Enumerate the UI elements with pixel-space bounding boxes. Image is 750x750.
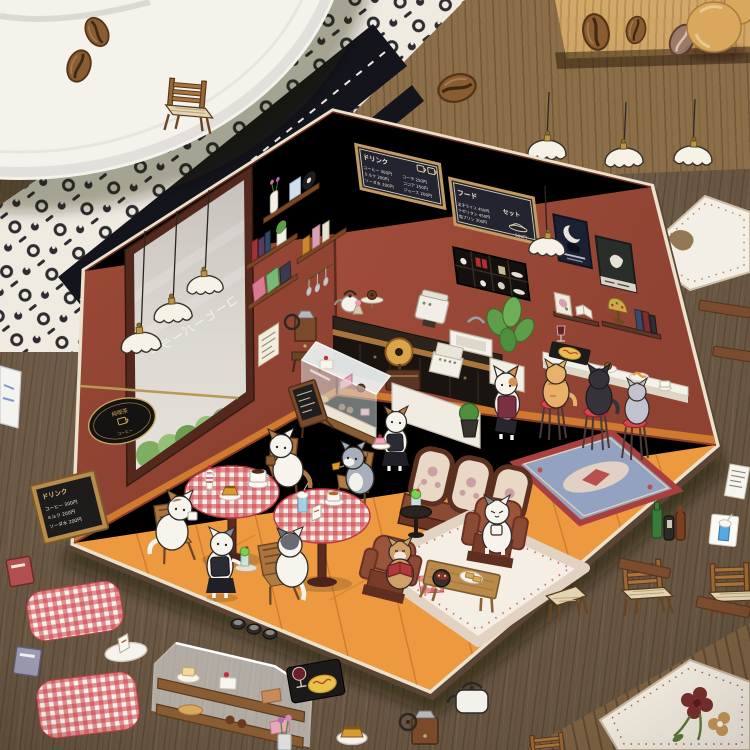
cream-soda-sticker [709,512,739,547]
display-case-sticker [151,642,314,748]
folded-paper-sticker-left [0,366,21,428]
hanging-lamp-stickers [528,92,713,168]
flower-rug-sticker [600,660,750,750]
coffee-cup-large [248,469,269,488]
tray-omurice-sticker [286,659,345,704]
wooden-gourd-figure [686,0,750,60]
coffee-beans [435,12,699,106]
wood-plank-stickers-right [698,300,750,363]
scene-art: コーヒーパーラー 純喫茶 コーヒー [0,0,750,750]
pudding-sticker [337,728,367,745]
plate-and-menu-sticker [103,631,148,664]
poster-figure [596,236,637,292]
grinder-sticker [400,711,438,744]
photo-cat-cafe-papercraft-scene: コーヒーパーラー 純喫茶 コーヒー [0,0,750,750]
menu-paper-sticker [724,464,749,499]
